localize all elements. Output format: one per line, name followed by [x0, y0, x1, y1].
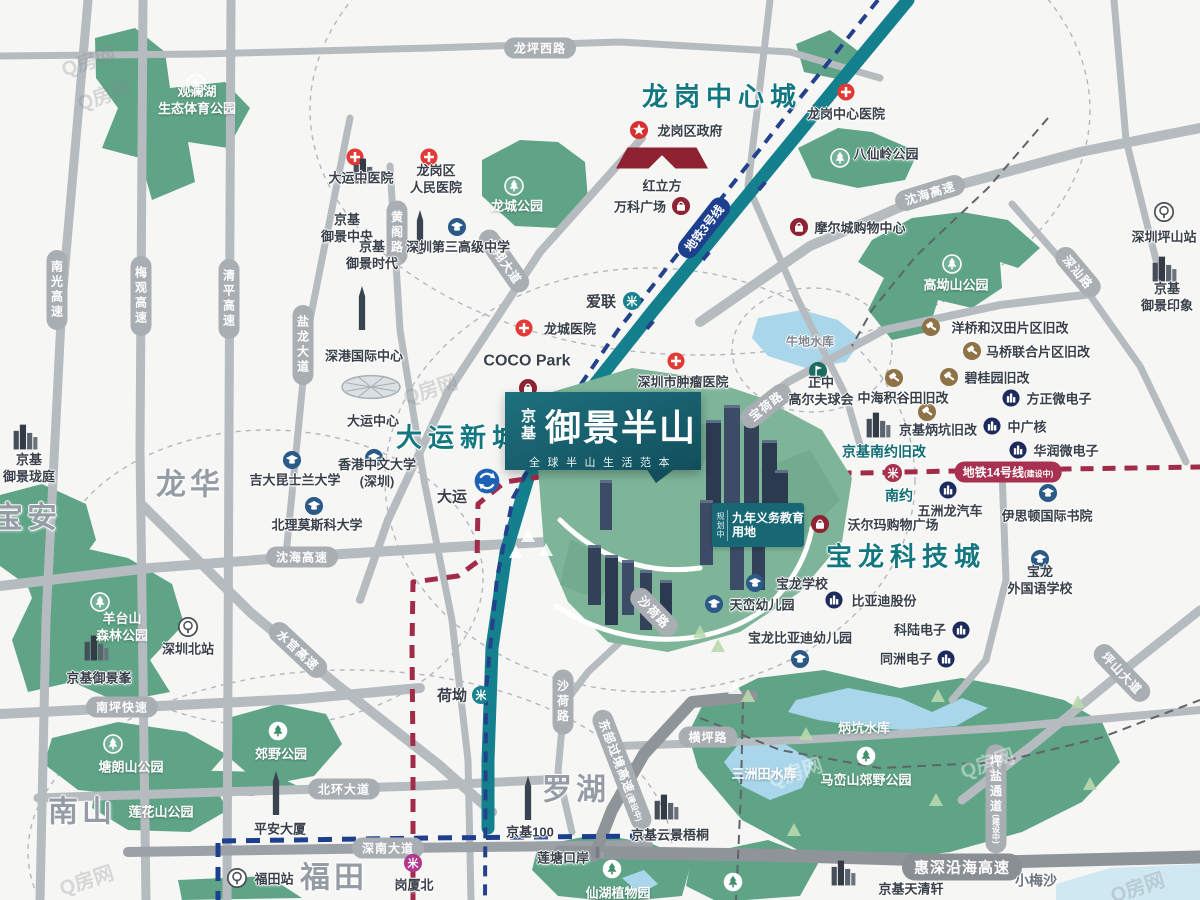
- hospital-icon: [667, 352, 685, 370]
- label-福田站: 福田站: [254, 871, 293, 888]
- metro-icon: 米: [404, 854, 423, 873]
- label-北理莫斯科大学: 北理莫斯科大学: [271, 517, 362, 534]
- park-icon: [504, 176, 524, 196]
- label-爱联: 爱联: [586, 294, 616, 311]
- label-京基云景梧桐: 京基云景梧桐: [631, 827, 709, 844]
- label-华润微电子: 华润微电子: [1033, 443, 1098, 460]
- label-宝龙: 宝龙外国语学校: [1007, 563, 1072, 597]
- label-龙岗区: 龙岗区人民医院: [410, 162, 462, 196]
- redcube-icon: [616, 145, 708, 171]
- park2-icon: [602, 859, 622, 879]
- towers-icon: [1151, 253, 1178, 284]
- label-摩尔城购物中心: 摩尔城购物中心: [814, 220, 905, 237]
- label-大运: 大运: [437, 489, 467, 506]
- ent-icon: [952, 621, 970, 639]
- road-label-南坪快速: 南坪快速: [86, 697, 158, 718]
- project-brand: 京基: [517, 408, 538, 442]
- shopping-icon: [790, 218, 809, 237]
- label-京基: 京基御景时代: [346, 238, 398, 272]
- metro-icon: 米: [472, 686, 491, 705]
- edu-land-label: 九年义务教育 用地: [732, 511, 804, 539]
- road-label-东部过境高速: 东部过境高速(建设中): [589, 707, 654, 833]
- ent-icon: [825, 591, 843, 609]
- metro-icon: 米: [623, 292, 642, 311]
- label-岗厦北: 岗厦北: [394, 877, 433, 894]
- label-龙岗中心医院: 龙岗中心医院: [807, 106, 885, 123]
- label-吉大昆士兰大学: 吉大昆士兰大学: [249, 472, 340, 489]
- road-label-南光高速: 南光高速: [47, 250, 68, 330]
- ent-icon: [983, 417, 1001, 435]
- label-南约: 南约: [885, 488, 913, 505]
- park-icon: [942, 254, 962, 274]
- label-高坳山公园: 高坳山公园: [923, 277, 988, 294]
- towers-icon: [865, 409, 892, 440]
- label-深圳北站: 深圳北站: [162, 641, 214, 658]
- metro-line14-badge: 地铁14号线(建设中): [955, 462, 1062, 483]
- park-icon: [830, 148, 850, 168]
- towers-icon: [12, 421, 39, 452]
- label-比亚迪股份: 比亚迪股份: [851, 593, 916, 610]
- label-宝龙学校: 宝龙学校: [776, 576, 828, 593]
- svg-text:米: 米: [887, 466, 899, 480]
- road-label-盐龙大道: 盐龙大道: [293, 305, 314, 385]
- label-龙城医院: 龙城医院: [544, 321, 596, 338]
- road-label-沈海高速: 沈海高速: [266, 547, 338, 568]
- label-小梅沙: 小梅沙: [1015, 873, 1057, 890]
- label-仙湖植物园: 仙湖植物园: [585, 885, 650, 900]
- school-icon: [791, 650, 810, 669]
- label-京基天清轩: 京基天清轩: [878, 881, 943, 898]
- label-COCO Park: COCO Park: [483, 353, 570, 370]
- label-八仙岭公园: 八仙岭公园: [853, 146, 918, 163]
- hospital-icon: [515, 319, 533, 337]
- label-荷坳: 荷坳: [437, 688, 467, 705]
- interchange-icon: [474, 468, 500, 494]
- label-龙城公园: 龙城公园: [491, 198, 543, 215]
- school-icon: [746, 574, 765, 593]
- label-郊野公园: 郊野公园: [255, 746, 307, 763]
- label-宝龙科技城: 宝龙科技城: [826, 549, 986, 566]
- label-京基100: 京基100: [506, 824, 554, 841]
- label-马峦山郊野公园: 马峦山郊野公园: [820, 772, 911, 789]
- towers-icon: [830, 857, 857, 888]
- school-icon: [448, 218, 467, 237]
- road-label-清平高速: 清平高速: [219, 259, 240, 339]
- redev-icon: [940, 368, 959, 387]
- label-科陆电子: 科陆电子: [894, 622, 946, 639]
- label-深圳第三高级中学: 深圳第三高级中学: [406, 239, 510, 256]
- label-福田: 福田: [300, 870, 368, 887]
- label-大运中心: 大运中心: [347, 413, 399, 430]
- road-label-坪山大道: 坪山大道: [1089, 640, 1154, 706]
- school-icon: [705, 595, 724, 614]
- road-label-惠深沿海高速: 惠深沿海高速: [902, 854, 1022, 881]
- shopping-icon: [672, 197, 691, 216]
- label-伊思顿国际书院: 伊思顿国际书院: [1001, 508, 1092, 525]
- label-炳坑水库: 炳坑水库: [838, 720, 890, 737]
- label-宝安: 宝安: [0, 510, 61, 527]
- label-莲塘口岸: 莲塘口岸: [537, 850, 589, 867]
- label-京基炳坑旧改: 京基炳坑旧改: [899, 422, 977, 439]
- label-京基: 京基御景印象: [1141, 280, 1193, 314]
- label-香港中文大学: 香港中文大学(深圳): [338, 456, 416, 490]
- project-logo: 京基 御景半山 全球半山生活范本: [505, 392, 701, 470]
- metro-icon: 米: [884, 464, 903, 483]
- spire-icon: [356, 286, 369, 330]
- stadium-icon: [340, 374, 402, 401]
- road-label-沙荷路: 沙荷路: [626, 583, 682, 640]
- rail-icon: [227, 868, 248, 889]
- road-label-龙坪西路: 龙坪西路: [504, 38, 576, 59]
- watermark: Q房网: [55, 857, 117, 900]
- label-塘朗山公园: 塘朗山公园: [98, 759, 163, 776]
- label-中海积谷田旧改: 中海积谷田旧改: [857, 390, 948, 407]
- rail-icon: [178, 617, 199, 638]
- spire-icon: [522, 776, 535, 820]
- label-南山: 南山: [48, 804, 116, 821]
- label-观澜湖: 观澜湖生态体育公园: [158, 83, 236, 117]
- watermark: Q房网: [1106, 864, 1168, 900]
- svg-text:米: 米: [626, 294, 638, 308]
- road-label-宝荷路: 宝荷路: [736, 380, 795, 433]
- park2-icon: [268, 721, 288, 741]
- label-罗湖: 罗湖: [542, 782, 610, 799]
- label-宝龙比亚迪幼儿园: 宝龙比亚迪幼儿园: [748, 630, 852, 647]
- port-icon: [588, 842, 606, 860]
- label-深港国际中心: 深港国际中心: [325, 348, 403, 365]
- ent-icon: [1002, 389, 1020, 407]
- road-label-水官高速: 水官高速: [265, 618, 332, 682]
- road-label-沙荷路: 沙荷路: [553, 670, 574, 735]
- svg-text:米: 米: [407, 856, 419, 870]
- shopping-icon: [811, 515, 830, 534]
- label-天峦幼儿园: 天峦幼儿园: [729, 597, 794, 614]
- ent-icon: [1009, 441, 1027, 459]
- label-羊台山: 羊台山森林公园: [96, 610, 148, 644]
- road-label-深汕路: 深汕路: [1051, 243, 1105, 302]
- road-label-梅观高速: 梅观高速: [131, 256, 152, 336]
- label-龙华: 龙华: [156, 477, 224, 494]
- school-icon: [1039, 484, 1058, 503]
- label-五洲龙汽车: 五洲龙汽车: [917, 503, 982, 520]
- label-京基: 京基御景珑庭: [3, 451, 55, 485]
- school-icon: [305, 497, 324, 516]
- svg-text:米: 米: [475, 688, 487, 702]
- project-title: 御景半山: [545, 399, 697, 451]
- park-icon: [103, 734, 123, 754]
- label-万科广场: 万科广场: [614, 199, 666, 216]
- label-方正微电子: 方正微电子: [1026, 391, 1091, 408]
- real-estate-location-map: 观澜湖生态体育公园龙城公园八仙岭公园高坳山公园羊台山森林公园塘朗山公园郊野公园莲…: [0, 0, 1200, 900]
- label-同洲电子: 同洲电子: [880, 651, 932, 668]
- label-龙岗区政府: 龙岗区政府: [657, 123, 722, 140]
- towers-icon: [653, 791, 680, 822]
- park-icon: [90, 592, 110, 612]
- edu-land-tag: 规划中: [712, 510, 728, 541]
- label-红立方: 红立方: [642, 178, 681, 195]
- edu-land-badge: 规划中 九年义务教育 用地: [712, 503, 804, 547]
- road-label-沈海高速: 沈海高速: [892, 172, 967, 213]
- label-京基南约旧改: 京基南约旧改: [842, 444, 926, 461]
- redev-icon: [963, 342, 982, 361]
- school-icon: [283, 451, 302, 470]
- spire-icon: [270, 771, 283, 815]
- watermark: Q房网: [73, 72, 135, 117]
- ent-icon: [939, 481, 957, 499]
- label-龙岗中心城: 龙岗中心城: [642, 89, 802, 106]
- watermark: Q房网: [764, 749, 826, 794]
- label-京基御景峯: 京基御景峯: [66, 670, 131, 687]
- redev-icon: [885, 369, 904, 388]
- label-深圳坪山站: 深圳坪山站: [1131, 229, 1196, 246]
- label-碧桂园旧改: 碧桂园旧改: [964, 370, 1029, 387]
- gov-icon: [630, 121, 649, 140]
- label-莲花山公园: 莲花山公园: [128, 804, 193, 821]
- road-label-龙翔大道: 龙翔大道: [475, 225, 534, 296]
- label-平安大厦: 平安大厦: [254, 821, 306, 838]
- label-洋桥和汉田片区旧改: 洋桥和汉田片区旧改: [951, 320, 1068, 337]
- park2-icon: [723, 872, 743, 892]
- project-tagline: 全球半山生活范本: [505, 454, 701, 470]
- label-牛地水库: 牛地水库: [786, 334, 834, 351]
- rail-icon: [1154, 202, 1175, 223]
- label-中广核: 中广核: [1007, 419, 1046, 436]
- watermark: Q房网: [399, 366, 461, 411]
- redev-icon: [922, 318, 941, 337]
- label-大运中医院: 大运中医院: [328, 170, 393, 187]
- park2-icon: [856, 746, 876, 766]
- road-label-横坪路: 横坪路: [678, 727, 737, 748]
- road-label-北环大道: 北环大道: [308, 779, 380, 800]
- label-马桥联合片区旧改: 马桥联合片区旧改: [986, 344, 1090, 361]
- label-正中: 正中高尔夫球会: [788, 374, 853, 408]
- ent-icon: [937, 650, 955, 668]
- hospital-icon: [837, 83, 855, 101]
- label-深圳市肿瘤医院: 深圳市肿瘤医院: [637, 374, 728, 391]
